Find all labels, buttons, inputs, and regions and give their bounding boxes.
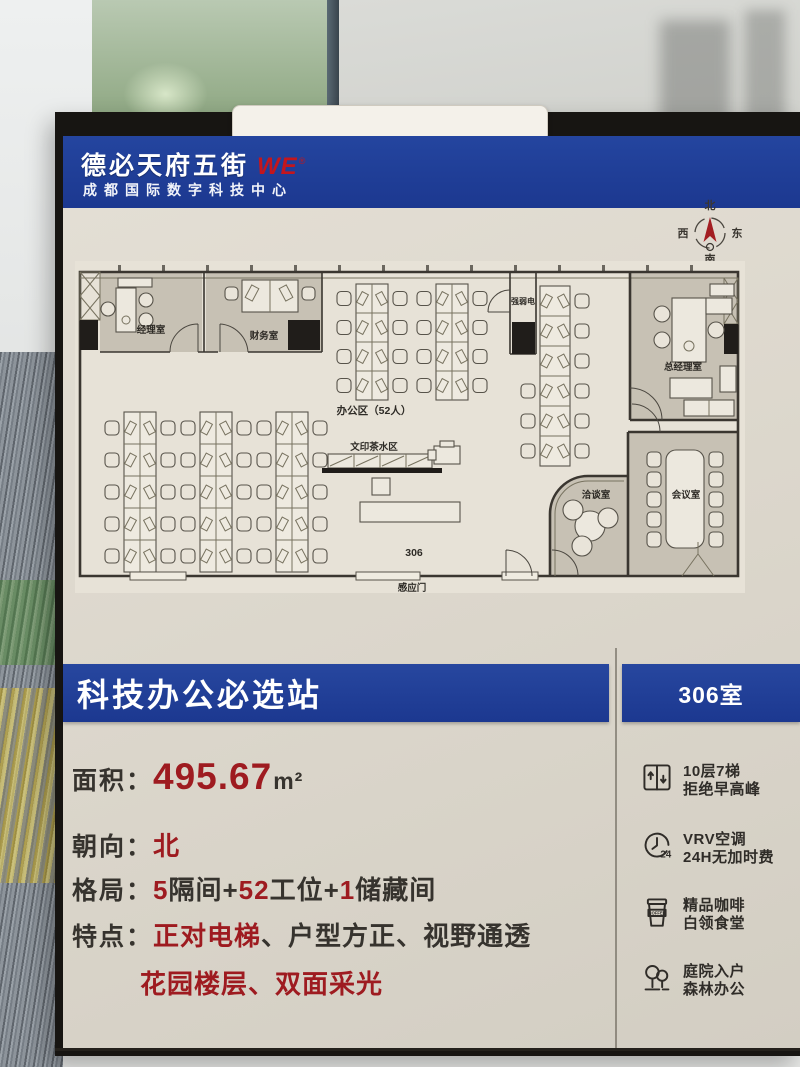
layout-part: 工位+ xyxy=(270,870,340,907)
area-row: 面积： 495.67 m² xyxy=(72,756,303,798)
column-block xyxy=(724,324,738,354)
room-label-finance: 财务室 xyxy=(249,330,279,342)
layout-part: 5 xyxy=(153,875,168,906)
brand-subtitle: 成都国际数字科技中心 xyxy=(83,180,293,200)
room-label-negotiation: 洽谈室 xyxy=(582,489,611,501)
room-banner: 306室 xyxy=(622,664,800,722)
feature-item: 视野通透 xyxy=(423,916,531,953)
svg-text:COFFEE: COFFEE xyxy=(649,911,666,916)
layout-part: 隔间+ xyxy=(168,870,238,907)
layout-part: 52 xyxy=(239,875,270,906)
room-label-gm: 总经理室 xyxy=(664,361,703,373)
feature-item: 花园楼层 xyxy=(140,964,248,1001)
layout-part: 1 xyxy=(340,875,355,906)
door-track xyxy=(130,572,186,580)
banner-room-number: 306室 xyxy=(678,676,743,710)
title-banner: 科技办公必选站 xyxy=(63,664,609,722)
amenity-coffee: COFFEE 精品咖啡 白领食堂 xyxy=(642,896,794,933)
coffee-icon: COFFEE xyxy=(642,896,672,928)
amenity-hvac: 24 VRV空调 24H无加时费 xyxy=(642,830,794,867)
carpet-green-stripe xyxy=(0,580,63,665)
area-label-office: 办公区（52人） xyxy=(337,404,412,417)
room-number-306: 306 xyxy=(405,547,423,559)
feature-separator: 、 xyxy=(396,916,423,953)
orientation-row: 朝向： 北 xyxy=(72,826,180,863)
banner-title: 科技办公必选站 xyxy=(63,670,322,716)
brand-name: 德必天府五街 xyxy=(81,146,249,182)
trees-icon xyxy=(642,962,672,994)
room-label-utility: 强弱电 xyxy=(511,296,535,306)
feature-item: 户型方正 xyxy=(288,916,396,953)
room-label-conference: 会议室 xyxy=(672,489,701,501)
column-block xyxy=(512,322,535,354)
room-label-manager: 经理室 xyxy=(137,324,166,336)
amenity-text: 精品咖啡 白领食堂 xyxy=(683,896,745,933)
column-block xyxy=(80,320,98,350)
features-row: 特点： 正对电梯 、 户型方正 、 视野通透 xyxy=(72,916,531,953)
sensor-door-label: 感应门 xyxy=(398,582,427,594)
feature-item: 正对电梯 xyxy=(153,916,261,953)
floor-plan: 经理室 财务室 强弱电 总经理室 洽谈室 会议室 办公区（52人） 文印茶水区 … xyxy=(72,254,748,600)
layout-part: 储藏间 xyxy=(355,870,436,907)
brand-logo-we: WE xyxy=(257,153,298,181)
trademark-mark: ® xyxy=(299,156,306,166)
amenity-elevator: 10层7梯 拒绝早高峰 xyxy=(642,762,794,799)
amenity-garden: 庭院入户 森林办公 xyxy=(642,962,794,999)
features-row-2: 花园楼层 、 双面采光 xyxy=(140,964,383,1001)
layout-row: 格局： 5 隔间+ 52 工位+ 1 储藏间 xyxy=(72,870,436,907)
clock-24-icon: 24 xyxy=(642,830,672,862)
compass-east: 东 xyxy=(732,226,743,240)
svg-text:24: 24 xyxy=(660,849,671,860)
sensor-door-track xyxy=(356,572,420,580)
area-label: 面积： xyxy=(72,761,153,797)
amenity-text: VRV空调 24H无加时费 xyxy=(683,830,774,867)
orientation-value: 北 xyxy=(153,826,180,863)
area-label-print-tea: 文印茶水区 xyxy=(349,441,398,453)
carpet-yellow-stripe xyxy=(0,688,63,883)
layout-label: 格局： xyxy=(72,871,153,907)
feature-separator: 、 xyxy=(248,964,275,1001)
area-value: 495.67 xyxy=(153,756,272,798)
orientation-label: 朝向： xyxy=(72,827,153,863)
poster-bottom-frame xyxy=(55,1048,800,1051)
photo-of-floorplan-poster: 德必天府五街 WE ® 成都国际数字科技中心 北 南 西 东 xyxy=(0,0,800,1067)
brand-line: 德必天府五街 WE ® xyxy=(81,146,305,182)
poster-panel-seam xyxy=(615,648,617,1050)
compass-needle xyxy=(704,217,717,242)
feature-item: 双面采光 xyxy=(275,964,383,1001)
area-unit: m² xyxy=(273,768,303,795)
compass-west: 西 xyxy=(678,227,689,240)
feature-separator: 、 xyxy=(261,916,288,953)
door-track xyxy=(502,572,538,580)
features-label: 特点： xyxy=(72,917,153,953)
amenity-text: 10层7梯 拒绝早高峰 xyxy=(683,762,761,799)
compass-north: 北 xyxy=(705,198,716,212)
elevator-icon xyxy=(642,762,672,794)
column-block xyxy=(288,320,320,350)
amenity-text: 庭院入户 森林办公 xyxy=(683,962,745,999)
